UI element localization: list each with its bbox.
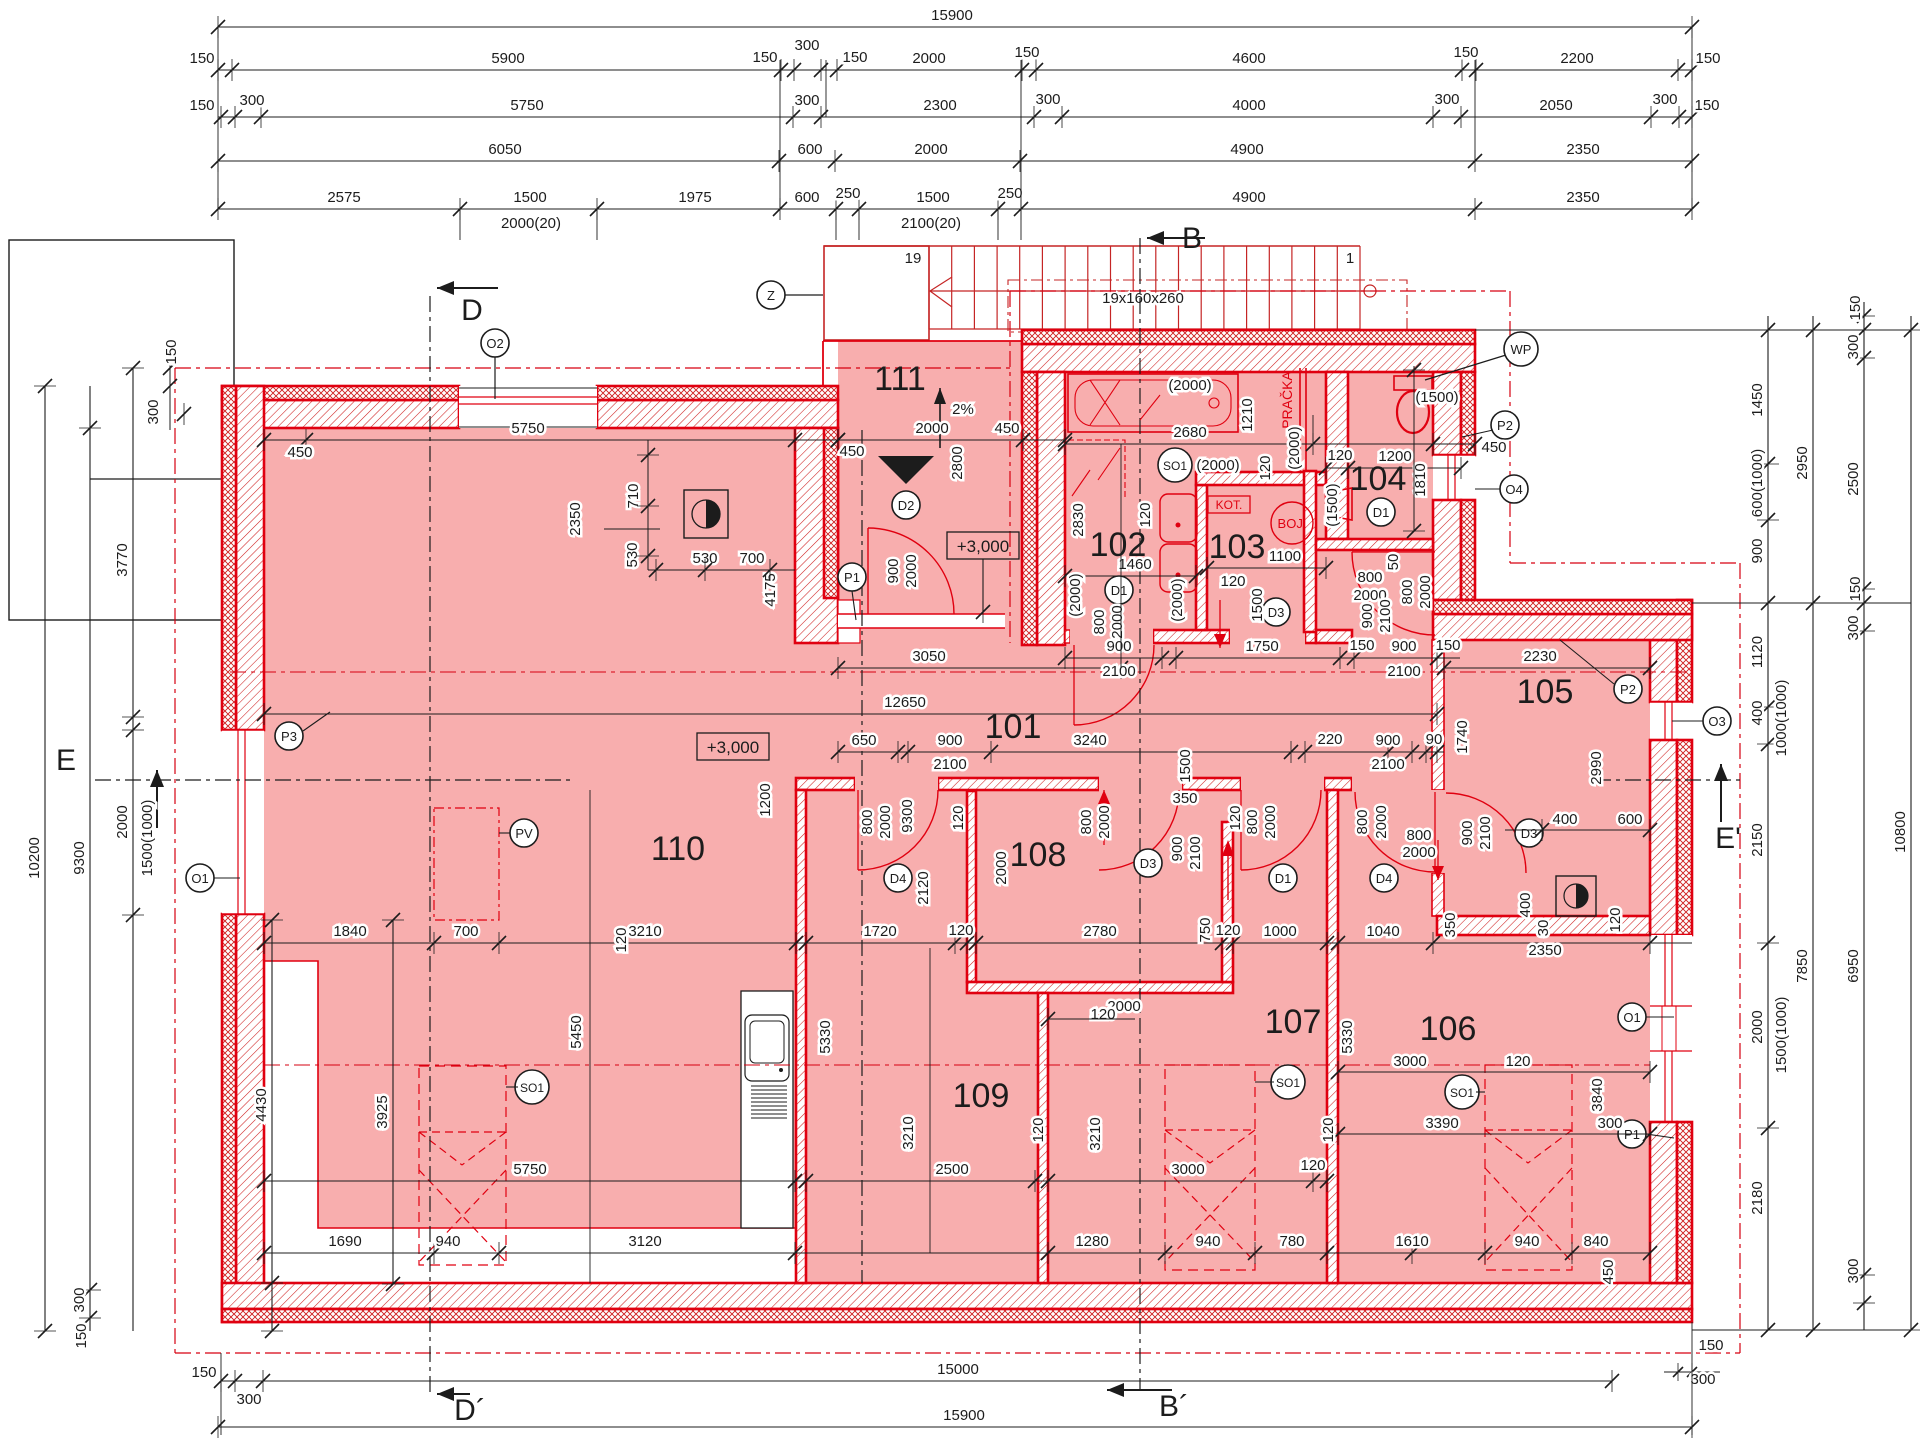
svg-text:300: 300 — [1035, 91, 1060, 108]
svg-text:150: 150 — [1435, 637, 1460, 654]
svg-text:O2: O2 — [486, 336, 503, 351]
svg-text:750: 750 — [1197, 917, 1214, 942]
svg-text:300: 300 — [1690, 1371, 1715, 1388]
svg-text:450: 450 — [287, 444, 312, 461]
svg-text:PV: PV — [515, 826, 533, 841]
svg-text:530: 530 — [624, 542, 641, 567]
svg-text:111: 111 — [874, 360, 926, 398]
svg-text:300: 300 — [794, 37, 819, 54]
svg-text:1500(1000): 1500(1000) — [139, 800, 156, 877]
svg-text:1450: 1450 — [1749, 383, 1766, 416]
svg-text:2050: 2050 — [1539, 97, 1572, 114]
svg-text:2500: 2500 — [1845, 462, 1862, 495]
svg-text:10800: 10800 — [1892, 811, 1909, 853]
svg-text:(1500): (1500) — [1415, 389, 1458, 406]
svg-text:840: 840 — [1583, 1233, 1608, 1250]
svg-text:300: 300 — [1845, 1258, 1862, 1283]
svg-text:1810: 1810 — [1412, 463, 1429, 496]
svg-text:2000: 2000 — [877, 805, 894, 838]
svg-text:2100(20): 2100(20) — [901, 215, 961, 232]
svg-text:D1: D1 — [1275, 871, 1292, 886]
svg-text:SO1: SO1 — [1276, 1076, 1300, 1090]
svg-text:D1: D1 — [1373, 505, 1390, 520]
svg-text:150: 150 — [842, 49, 867, 66]
svg-text:940: 940 — [1514, 1233, 1539, 1250]
svg-text:5900: 5900 — [491, 50, 524, 67]
svg-text:7850: 7850 — [1794, 949, 1811, 982]
svg-text:15900: 15900 — [931, 7, 973, 24]
svg-text:3000: 3000 — [1171, 1161, 1204, 1178]
svg-text:2100: 2100 — [1371, 756, 1404, 773]
svg-text:15900: 15900 — [943, 1407, 985, 1424]
svg-text:12650: 12650 — [884, 694, 926, 711]
svg-text:600: 600 — [794, 189, 819, 206]
svg-text:120: 120 — [1220, 573, 1245, 590]
svg-text:2575: 2575 — [327, 189, 360, 206]
svg-text:1500(1000): 1500(1000) — [1773, 997, 1790, 1074]
svg-text:D2: D2 — [898, 498, 915, 513]
svg-text:300: 300 — [71, 1287, 88, 1312]
svg-text:900: 900 — [1749, 538, 1766, 563]
svg-text:1500: 1500 — [916, 189, 949, 206]
svg-text:120: 120 — [1505, 1053, 1530, 1070]
svg-text:250: 250 — [997, 185, 1022, 202]
svg-text:1100: 1100 — [1269, 548, 1301, 565]
svg-text:30: 30 — [1535, 920, 1552, 937]
svg-text:3210: 3210 — [628, 923, 661, 940]
svg-text:2680: 2680 — [1173, 424, 1206, 441]
svg-text:2100: 2100 — [1477, 816, 1494, 849]
svg-text:(2000): (2000) — [1169, 578, 1186, 621]
svg-text:220: 220 — [1317, 731, 1342, 748]
svg-text:1000(1000): 1000(1000) — [1773, 680, 1790, 757]
svg-text:1280: 1280 — [1075, 1233, 1108, 1250]
svg-text:1840: 1840 — [333, 923, 366, 940]
svg-text:3000: 3000 — [1393, 1053, 1426, 1070]
svg-text:150: 150 — [163, 339, 180, 364]
svg-text:700: 700 — [739, 550, 764, 567]
svg-text:1500: 1500 — [513, 189, 546, 206]
svg-text:120: 120 — [1257, 455, 1274, 480]
svg-text:120: 120 — [1137, 502, 1154, 527]
svg-text:150: 150 — [191, 1364, 216, 1381]
svg-text:2000: 2000 — [1109, 605, 1126, 638]
svg-text:2800: 2800 — [949, 446, 966, 479]
svg-text:4900: 4900 — [1232, 189, 1265, 206]
svg-text:E': E' — [1715, 822, 1741, 855]
svg-text:900: 900 — [885, 558, 902, 583]
svg-text:2350: 2350 — [1566, 189, 1599, 206]
svg-text:2120: 2120 — [915, 871, 932, 904]
svg-text:2000: 2000 — [1402, 844, 1435, 861]
svg-text:5450: 5450 — [568, 1015, 585, 1048]
svg-text:3840: 3840 — [1589, 1078, 1606, 1111]
svg-text:2350: 2350 — [1528, 942, 1561, 959]
svg-text:900: 900 — [1391, 638, 1416, 655]
svg-text:90: 90 — [1426, 731, 1443, 748]
svg-text:2000: 2000 — [912, 50, 945, 67]
svg-text:3925: 3925 — [374, 1095, 391, 1128]
svg-text:800: 800 — [1091, 609, 1108, 634]
svg-text:900: 900 — [1375, 732, 1400, 749]
svg-text:3770: 3770 — [114, 543, 131, 576]
svg-text:350: 350 — [1172, 790, 1197, 807]
svg-text:800: 800 — [1354, 809, 1371, 834]
svg-text:300: 300 — [236, 1391, 261, 1408]
svg-text:150: 150 — [1695, 50, 1720, 67]
svg-text:SO1: SO1 — [1163, 459, 1187, 473]
svg-text:D1: D1 — [1111, 583, 1128, 598]
svg-text:O3: O3 — [1708, 714, 1725, 729]
svg-text:5330: 5330 — [817, 1020, 834, 1053]
svg-text:1500: 1500 — [1249, 588, 1266, 621]
svg-text:5330: 5330 — [1339, 1020, 1356, 1053]
svg-text:150: 150 — [1847, 295, 1864, 320]
svg-text:300: 300 — [1845, 615, 1862, 640]
svg-text:120: 120 — [950, 805, 967, 830]
svg-text:2100: 2100 — [933, 756, 966, 773]
svg-text:106: 106 — [1420, 1010, 1477, 1048]
svg-text:3210: 3210 — [1087, 1117, 1104, 1150]
svg-text:107: 107 — [1265, 1003, 1322, 1041]
svg-text:50: 50 — [1385, 554, 1402, 571]
svg-text:1500: 1500 — [1177, 749, 1194, 782]
svg-text:250: 250 — [835, 185, 860, 202]
svg-text:BOJ.: BOJ. — [1278, 516, 1307, 531]
svg-text:P2: P2 — [1620, 682, 1636, 697]
svg-text:SO1: SO1 — [520, 1081, 544, 1095]
svg-text:2000: 2000 — [903, 554, 920, 587]
svg-text:4600: 4600 — [1232, 50, 1265, 67]
svg-text:900: 900 — [1106, 638, 1131, 655]
svg-text:O1: O1 — [1623, 1010, 1640, 1025]
svg-text:2780: 2780 — [1083, 923, 1116, 940]
svg-text:1040: 1040 — [1366, 923, 1399, 940]
svg-text:400: 400 — [1517, 892, 1534, 917]
svg-text:300: 300 — [1434, 91, 1459, 108]
svg-text:300: 300 — [1845, 334, 1862, 359]
svg-text:(2000): (2000) — [1286, 426, 1303, 469]
svg-text:B: B — [1182, 222, 1202, 255]
svg-text:2%: 2% — [952, 401, 974, 418]
svg-text:10200: 10200 — [26, 837, 43, 879]
svg-text:2100: 2100 — [1187, 836, 1204, 869]
svg-text:120: 120 — [1327, 447, 1352, 464]
svg-text:PRAČKA: PRAČKA — [1279, 371, 1295, 429]
svg-text:2990: 2990 — [1588, 751, 1605, 784]
svg-text:(2000): (2000) — [1196, 457, 1239, 474]
svg-text:P1: P1 — [844, 570, 860, 585]
svg-text:D4: D4 — [1376, 871, 1393, 886]
svg-text:800: 800 — [1357, 569, 1382, 586]
svg-text:400: 400 — [1552, 811, 1577, 828]
svg-text:450: 450 — [1481, 439, 1506, 456]
svg-text:1975: 1975 — [678, 189, 711, 206]
svg-text:2300: 2300 — [923, 97, 956, 114]
svg-text:120: 120 — [613, 927, 630, 952]
svg-text:2830: 2830 — [1070, 503, 1087, 536]
svg-text:D4: D4 — [890, 871, 907, 886]
svg-text:150: 150 — [1453, 44, 1478, 61]
svg-text:150: 150 — [1349, 637, 1374, 654]
svg-text:4175: 4175 — [762, 573, 779, 606]
svg-text:120: 120 — [1227, 805, 1244, 830]
svg-text:3210: 3210 — [900, 1116, 917, 1149]
svg-text:800: 800 — [1244, 809, 1261, 834]
svg-text:120: 120 — [1030, 1117, 1047, 1142]
svg-text:2000: 2000 — [1417, 575, 1434, 608]
svg-text:6050: 6050 — [488, 141, 521, 158]
svg-text:2000: 2000 — [993, 851, 1010, 884]
svg-text:700: 700 — [453, 923, 478, 940]
svg-text:1210: 1210 — [1239, 398, 1256, 431]
svg-text:2200: 2200 — [1560, 50, 1593, 67]
svg-text:19x160x260: 19x160x260 — [1102, 290, 1184, 307]
svg-text:600(1000): 600(1000) — [1749, 449, 1766, 517]
svg-text:2350: 2350 — [567, 502, 584, 535]
svg-text:2000: 2000 — [914, 141, 947, 158]
svg-text:1690: 1690 — [328, 1233, 361, 1250]
svg-text:150: 150 — [1694, 97, 1719, 114]
svg-text:D´: D´ — [454, 1394, 486, 1427]
svg-text:600: 600 — [1617, 811, 1642, 828]
svg-text:Z: Z — [767, 288, 775, 303]
svg-text:400: 400 — [1749, 700, 1766, 725]
svg-text:3050: 3050 — [912, 648, 945, 665]
svg-text:900: 900 — [1169, 836, 1186, 861]
svg-text:900: 900 — [1459, 820, 1476, 845]
svg-text:300: 300 — [794, 92, 819, 109]
svg-text:5750: 5750 — [513, 1161, 546, 1178]
svg-text:SO1: SO1 — [1450, 1086, 1474, 1100]
svg-text:1460: 1460 — [1118, 556, 1151, 573]
svg-text:P2: P2 — [1497, 418, 1513, 433]
svg-text:9300: 9300 — [71, 841, 88, 874]
svg-text:150: 150 — [189, 50, 214, 67]
svg-text:150: 150 — [1698, 1337, 1723, 1354]
svg-text:WP: WP — [1511, 342, 1532, 357]
svg-text:450: 450 — [839, 443, 864, 460]
svg-text:1200: 1200 — [757, 783, 774, 816]
svg-text:105: 105 — [1517, 673, 1574, 711]
svg-text:800: 800 — [1406, 827, 1431, 844]
svg-text:2230: 2230 — [1523, 648, 1556, 665]
svg-text:15000: 15000 — [937, 1361, 979, 1378]
svg-text:1120: 1120 — [1749, 636, 1766, 668]
svg-text:2000: 2000 — [915, 420, 948, 437]
svg-text:109: 109 — [953, 1077, 1010, 1115]
svg-text:120: 120 — [1090, 1006, 1115, 1023]
svg-text:2000: 2000 — [1749, 1010, 1766, 1043]
svg-text:O1: O1 — [191, 871, 208, 886]
svg-text:4900: 4900 — [1230, 141, 1263, 158]
svg-text:1610: 1610 — [1395, 1233, 1428, 1250]
svg-text:120: 120 — [1320, 1117, 1337, 1142]
svg-text:2000(20): 2000(20) — [501, 215, 561, 232]
svg-text:710: 710 — [625, 483, 642, 508]
svg-text:2000: 2000 — [114, 805, 131, 838]
svg-text:6950: 6950 — [1845, 949, 1862, 982]
svg-text:650: 650 — [851, 732, 876, 749]
svg-text:900: 900 — [1359, 603, 1376, 628]
svg-text:KOT.: KOT. — [1216, 498, 1243, 512]
svg-text:(2000): (2000) — [1067, 573, 1084, 616]
svg-text:2500: 2500 — [935, 1161, 968, 1178]
svg-text:+3,000: +3,000 — [957, 537, 1009, 556]
svg-text:D: D — [461, 294, 483, 327]
svg-text:800: 800 — [1399, 579, 1416, 604]
svg-text:940: 940 — [1195, 1233, 1220, 1250]
svg-text:2000: 2000 — [1096, 805, 1113, 838]
svg-text:800: 800 — [1078, 809, 1095, 834]
svg-text:2100: 2100 — [1102, 663, 1135, 680]
svg-text:780: 780 — [1279, 1233, 1304, 1250]
svg-text:900: 900 — [937, 732, 962, 749]
svg-text:1000: 1000 — [1263, 923, 1296, 940]
svg-text:1: 1 — [1346, 250, 1354, 267]
svg-text:2000: 2000 — [1373, 805, 1390, 838]
svg-text:(1500): (1500) — [1324, 483, 1341, 526]
svg-text:120: 120 — [948, 922, 973, 939]
svg-text:9300: 9300 — [899, 799, 916, 832]
svg-text:120: 120 — [1607, 907, 1624, 932]
svg-text:350: 350 — [1442, 912, 1459, 937]
svg-text:940: 940 — [435, 1233, 460, 1250]
svg-text:1720: 1720 — [863, 923, 896, 940]
svg-text:4430: 4430 — [253, 1088, 270, 1121]
svg-text:D3: D3 — [1140, 856, 1157, 871]
svg-text:2950: 2950 — [1794, 446, 1811, 479]
svg-text:P3: P3 — [281, 729, 297, 744]
svg-text:450: 450 — [994, 420, 1019, 437]
svg-text:600: 600 — [797, 141, 822, 158]
svg-text:+3,000: +3,000 — [707, 738, 759, 757]
svg-text:2350: 2350 — [1566, 141, 1599, 158]
svg-text:1750: 1750 — [1245, 638, 1278, 655]
svg-text:300: 300 — [1652, 91, 1677, 108]
svg-text:3240: 3240 — [1073, 732, 1106, 749]
svg-text:E: E — [56, 744, 76, 777]
svg-text:300: 300 — [239, 92, 264, 109]
svg-text:110: 110 — [651, 830, 705, 868]
svg-text:(2000): (2000) — [1168, 377, 1211, 394]
svg-text:300: 300 — [1597, 1115, 1622, 1132]
svg-text:150: 150 — [1847, 576, 1864, 601]
svg-text:2180: 2180 — [1749, 1181, 1766, 1214]
svg-text:120: 120 — [1215, 922, 1240, 939]
svg-text:2000: 2000 — [1262, 805, 1279, 838]
svg-text:O4: O4 — [1505, 482, 1522, 497]
svg-text:D3: D3 — [1268, 605, 1285, 620]
svg-text:B´: B´ — [1159, 1390, 1189, 1423]
svg-text:2150: 2150 — [1749, 823, 1766, 856]
svg-text:5750: 5750 — [510, 97, 543, 114]
svg-text:2100: 2100 — [1387, 663, 1420, 680]
svg-text:19: 19 — [905, 250, 922, 267]
svg-text:4000: 4000 — [1232, 97, 1265, 114]
svg-text:1200: 1200 — [1378, 448, 1411, 465]
svg-text:5750: 5750 — [511, 420, 544, 437]
svg-text:150: 150 — [73, 1323, 90, 1348]
svg-text:2100: 2100 — [1377, 599, 1394, 632]
svg-text:150: 150 — [1014, 44, 1039, 61]
svg-text:104: 104 — [1350, 460, 1407, 498]
svg-text:450: 450 — [1600, 1259, 1617, 1284]
svg-text:150: 150 — [752, 49, 777, 66]
svg-text:120: 120 — [1300, 1157, 1325, 1174]
svg-text:3390: 3390 — [1425, 1115, 1458, 1132]
svg-text:103: 103 — [1209, 528, 1266, 566]
svg-text:D3: D3 — [1521, 826, 1538, 841]
svg-text:108: 108 — [1010, 836, 1067, 874]
svg-text:3120: 3120 — [628, 1233, 661, 1250]
svg-text:150: 150 — [189, 97, 214, 114]
svg-text:300: 300 — [145, 399, 162, 424]
svg-text:800: 800 — [859, 809, 876, 834]
svg-text:1740: 1740 — [1454, 720, 1471, 753]
